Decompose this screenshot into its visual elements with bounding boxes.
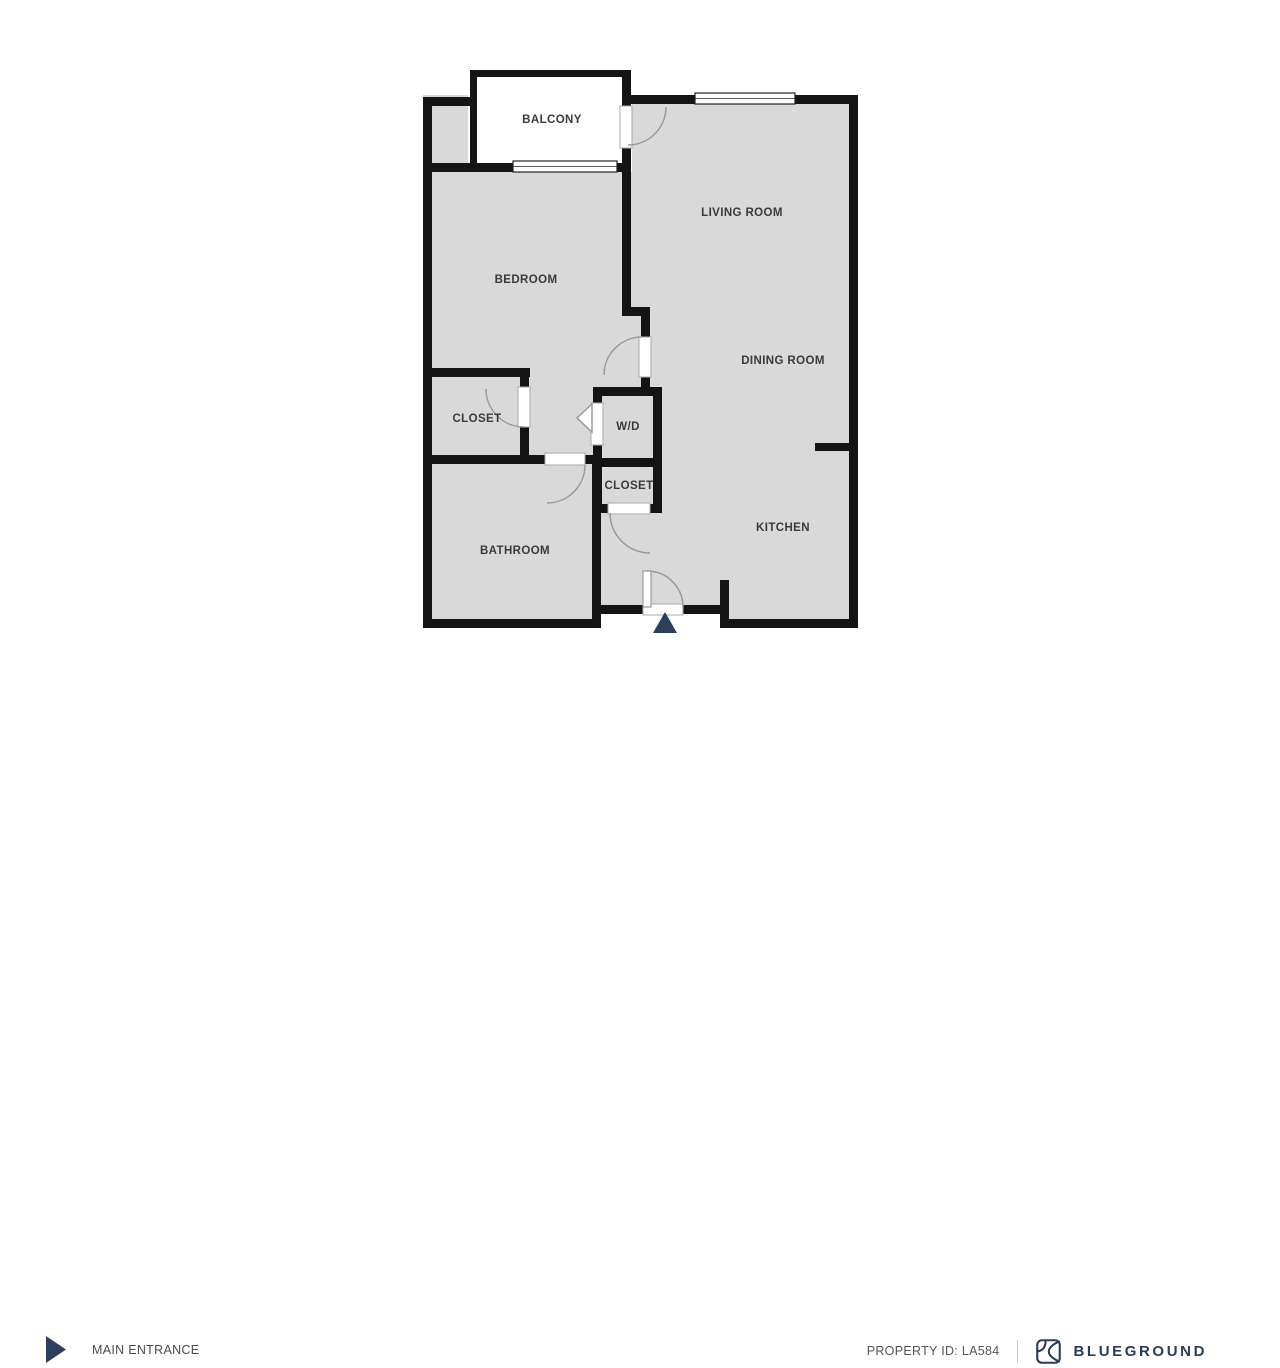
floorplan-drawing bbox=[0, 0, 1280, 720]
brand-name: BLUEGROUND bbox=[1074, 1343, 1208, 1360]
room-label-living-room: LIVING ROOM bbox=[701, 207, 783, 219]
footer-divider bbox=[1017, 1340, 1018, 1363]
room-label-kitchen: KITCHEN bbox=[756, 522, 810, 534]
brand-bar: PROPERTY ID: LA584 BLUEGROUND bbox=[867, 1334, 1207, 1368]
room-label-wd: W/D bbox=[616, 421, 640, 433]
footer: MAIN ENTRANCE PROPERTY ID: LA584 BLUEGRO… bbox=[0, 662, 1280, 720]
room-label-bathroom: BATHROOM bbox=[480, 545, 550, 557]
room-label-closet-left: CLOSET bbox=[452, 413, 501, 425]
floorplan-canvas: BALCONY LIVING ROOM BEDROOM DINING ROOM … bbox=[0, 0, 1280, 720]
room-label-dining-room: DINING ROOM bbox=[741, 355, 825, 367]
entrance-door-leaf bbox=[643, 571, 651, 607]
room-label-bedroom: BEDROOM bbox=[495, 274, 558, 286]
room-label-closet-center: CLOSET bbox=[604, 480, 653, 492]
main-entrance-legend: MAIN ENTRANCE bbox=[45, 1335, 199, 1364]
main-entrance-label: MAIN ENTRANCE bbox=[92, 1343, 199, 1357]
room-label-balcony: BALCONY bbox=[522, 114, 582, 126]
property-id-label: PROPERTY ID: LA584 bbox=[867, 1344, 1000, 1358]
blueground-logo-icon bbox=[1036, 1339, 1061, 1364]
brand-logo: BLUEGROUND bbox=[1036, 1339, 1208, 1364]
bedroom-window-icon bbox=[513, 161, 617, 172]
main-entrance-arrow-icon bbox=[45, 1335, 67, 1364]
living-room-window-icon bbox=[695, 93, 795, 104]
